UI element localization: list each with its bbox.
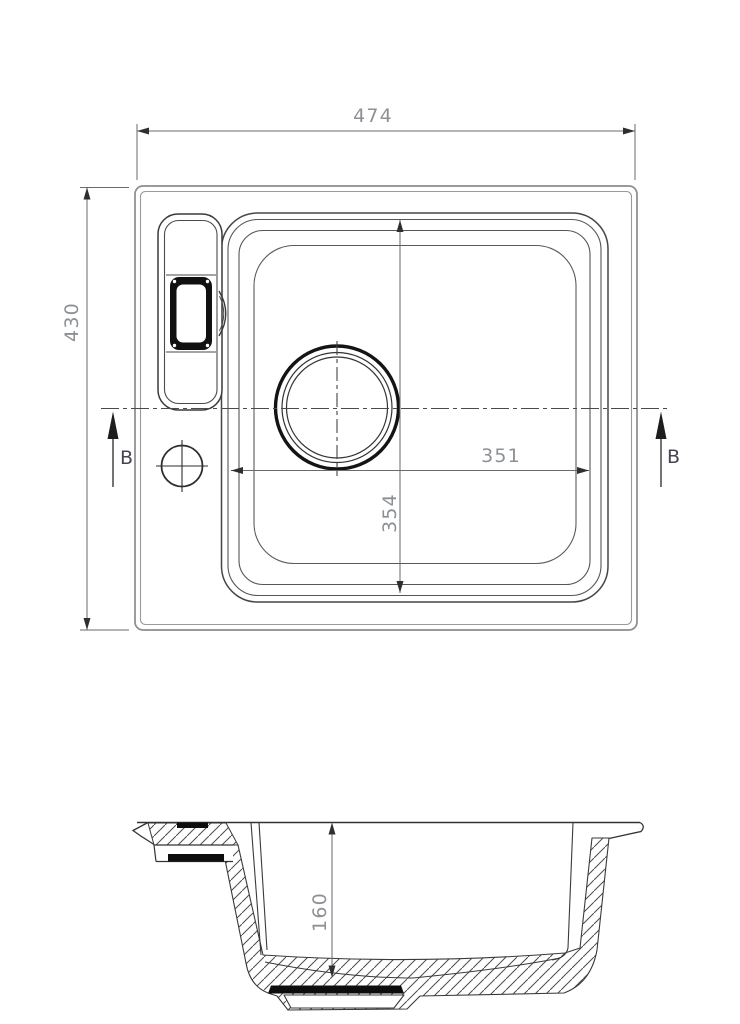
section-marker-right: B (667, 446, 680, 468)
dim-bowl-height-label: 160 (309, 892, 331, 932)
section-view: 160 (133, 823, 643, 1011)
section-tap-hole-lower-edge (168, 854, 224, 862)
technical-drawing-page: B B 474 430 3 (0, 0, 740, 1024)
section-marker-left: B (120, 447, 133, 469)
tap-ledge (158, 214, 226, 410)
section-drain-edge (268, 986, 404, 994)
section-bowl-interior (251, 823, 573, 979)
section-rim-right-edge (609, 823, 643, 839)
dim-bowl-width-label: 351 (481, 445, 521, 467)
dim-overall-width: 474 (137, 105, 635, 180)
dim-bowl-depth: 354 (379, 220, 404, 593)
section-wall-hatch (222, 838, 609, 1010)
dim-overall-depth-label: 430 (61, 302, 83, 342)
dim-bowl-height: 160 (309, 823, 336, 978)
hole-marker (156, 440, 208, 492)
tap-hole (170, 277, 212, 350)
sink-technical-drawing: B B 474 430 3 (0, 0, 740, 1024)
bowl-outline (222, 213, 609, 602)
plan-view: B B 474 430 3 (61, 105, 680, 630)
dim-bowl-depth-label: 354 (379, 493, 401, 533)
section-tap-hole-upper-edge (177, 823, 208, 829)
dim-bowl-width: 351 (231, 445, 589, 474)
section-arrow-left: B (108, 412, 134, 488)
section-arrow-right: B (656, 412, 681, 488)
dim-overall-width-label: 474 (353, 105, 393, 127)
